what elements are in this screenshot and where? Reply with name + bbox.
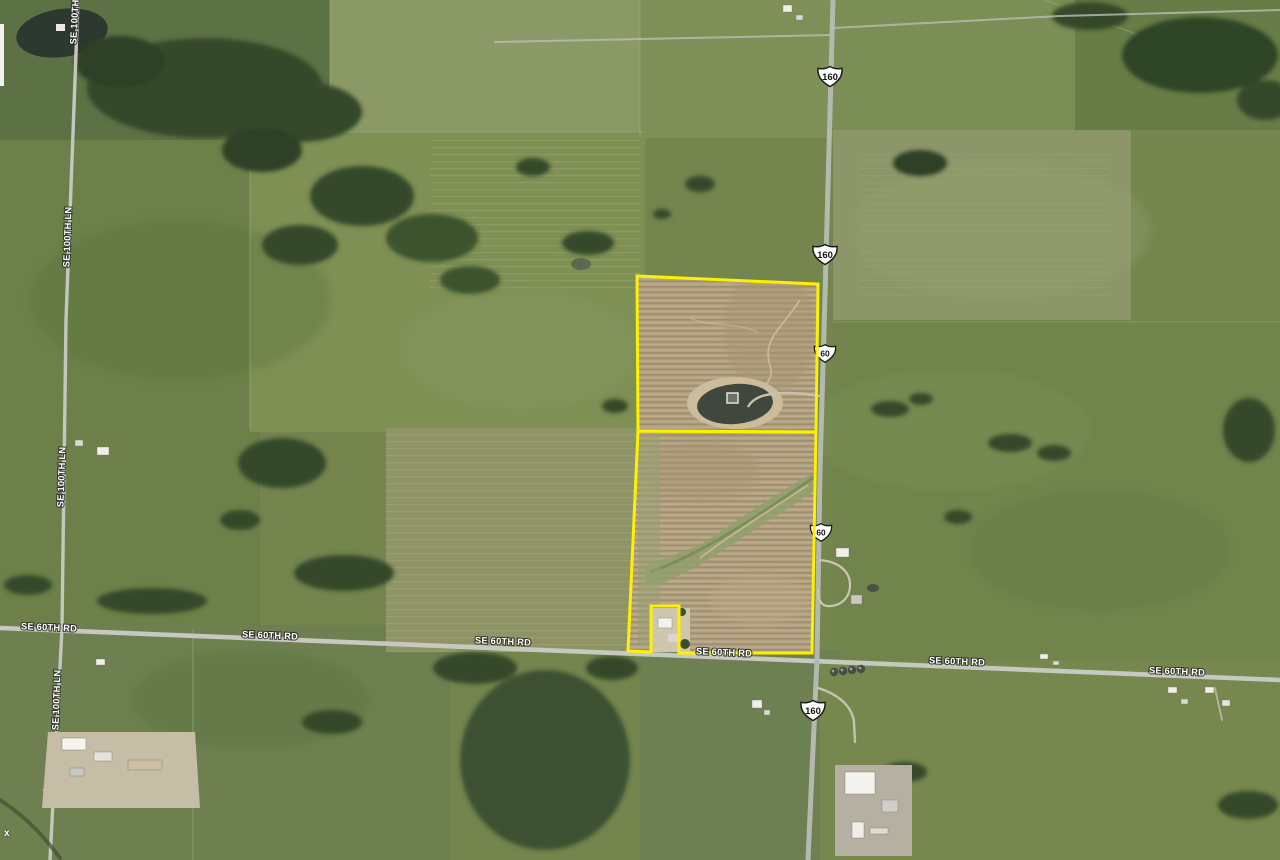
notch-farmstead — [652, 608, 690, 652]
ui-edge-artifact — [0, 24, 4, 86]
map-viewport[interactable]: 60 60 — [0, 0, 1280, 860]
shield-route-number: 60 — [820, 349, 830, 359]
map-watermark-x: x — [4, 828, 10, 839]
parcel-fields — [628, 265, 820, 653]
shield-route-number: 160 — [817, 250, 833, 261]
shield-route-number: 60 — [816, 528, 826, 538]
shield-route-number: 160 — [822, 72, 838, 83]
road-label-se-100th-ln: SE 100TH LN — [55, 446, 67, 507]
road-label-se-100th-ln: SE 100TH LN — [50, 669, 62, 730]
satellite-imagery: 60 60 — [0, 0, 1280, 860]
industrial-facility — [42, 732, 200, 808]
shield-route-number: 160 — [805, 706, 821, 717]
road-label-se-100th-ln: SE 100TH LN — [61, 206, 73, 267]
farm-complex — [835, 765, 912, 856]
